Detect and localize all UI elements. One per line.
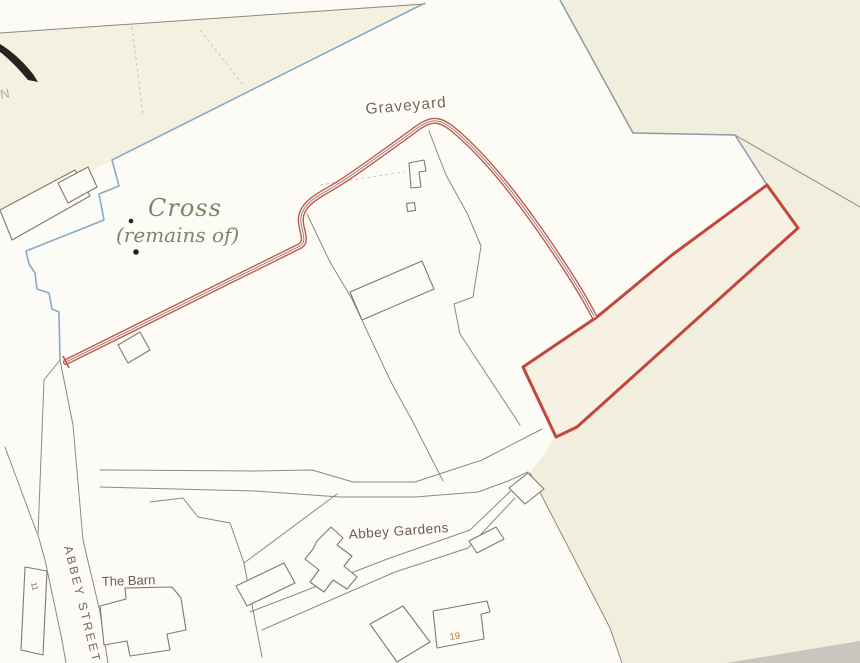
the-barn-label: The Barn (102, 572, 156, 589)
map-canvas: Graveyard Cross (remains of) Abbey Garde… (0, 0, 860, 663)
scanned-site-map: Graveyard Cross (remains of) Abbey Garde… (0, 0, 860, 663)
cross-site-dot-lower (133, 249, 139, 255)
cross-label-line1: Cross (148, 194, 222, 222)
cross-label-line2: (remains of) (116, 223, 239, 247)
building-graveyard-tiny (406, 202, 415, 211)
building-abbey-street-11 (21, 567, 47, 655)
house-19-label: 19 (449, 631, 461, 643)
